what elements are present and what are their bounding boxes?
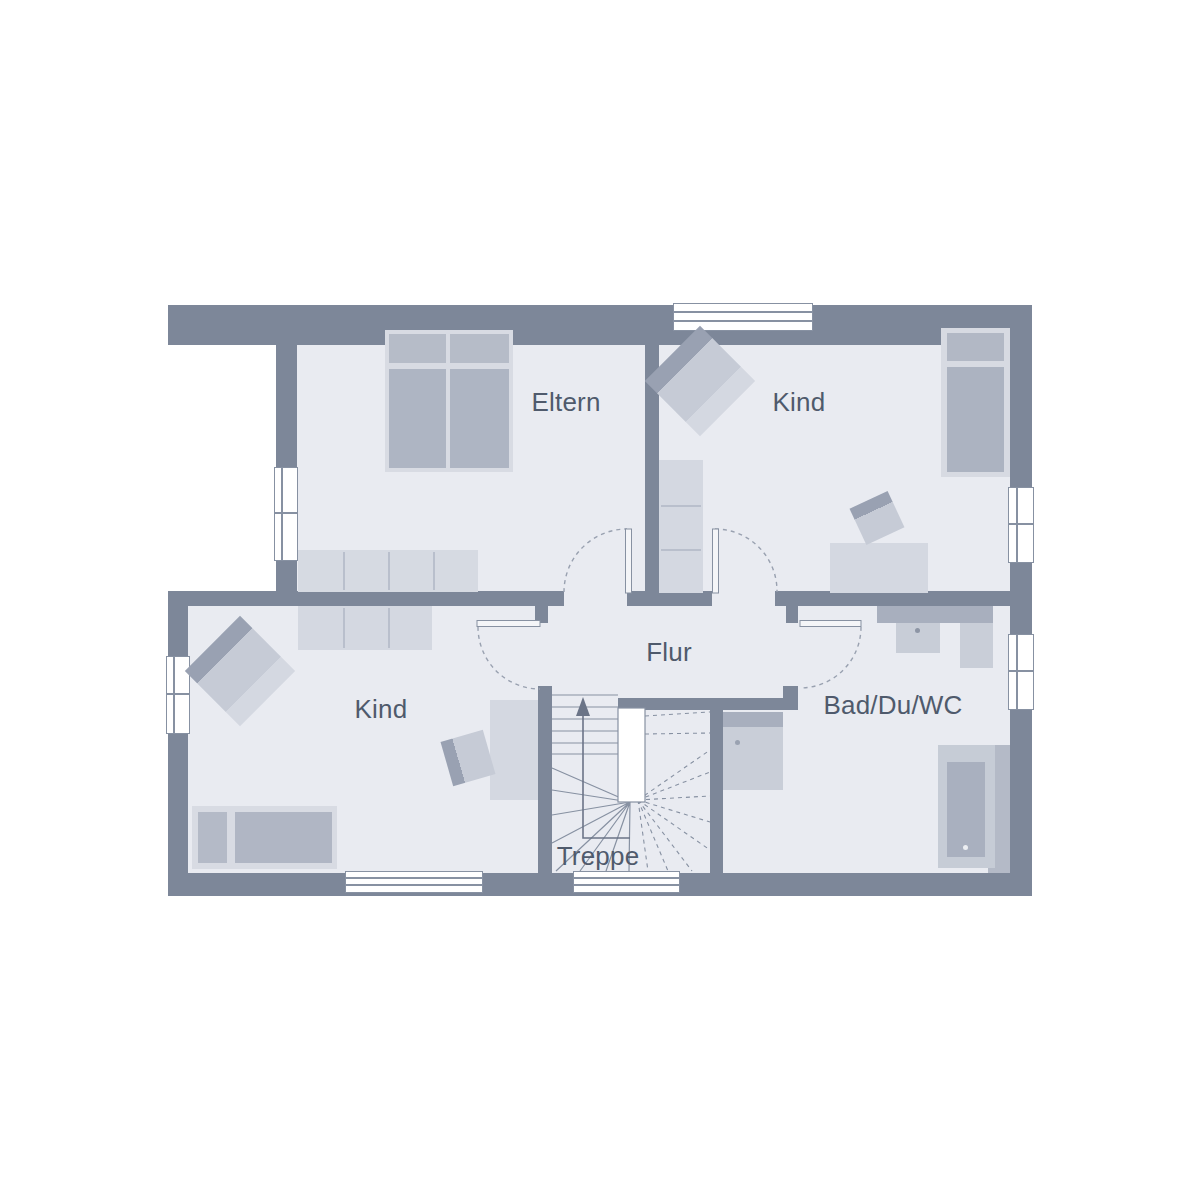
- stair-treads-dashed: [638, 712, 710, 871]
- room-label-kind-bottom: Kind: [355, 694, 408, 725]
- door-arc-kind-top: [715, 529, 777, 592]
- room-label-eltern: Eltern: [531, 387, 600, 418]
- floor-plan: Eltern Kind Kind Flur Bad/Du/WC Treppe: [0, 0, 1200, 1200]
- door-leaves: [477, 529, 861, 627]
- door-leaf-bad: [800, 621, 861, 627]
- door-leaf-eltern: [626, 529, 632, 593]
- room-label-bad: Bad/Du/WC: [823, 690, 962, 721]
- stair-void: [618, 708, 645, 802]
- door-leaf-kind-top: [713, 529, 719, 593]
- door-leaf-kind-bottom: [477, 621, 540, 627]
- linework-overlay: [0, 0, 1200, 1200]
- door-arc-eltern: [564, 529, 627, 592]
- room-label-flur: Flur: [646, 637, 692, 668]
- room-label-kind-top: Kind: [773, 387, 826, 418]
- room-label-treppe: Treppe: [557, 841, 640, 872]
- door-arc-bad: [800, 627, 861, 688]
- door-arc-kind-bottom: [478, 627, 540, 689]
